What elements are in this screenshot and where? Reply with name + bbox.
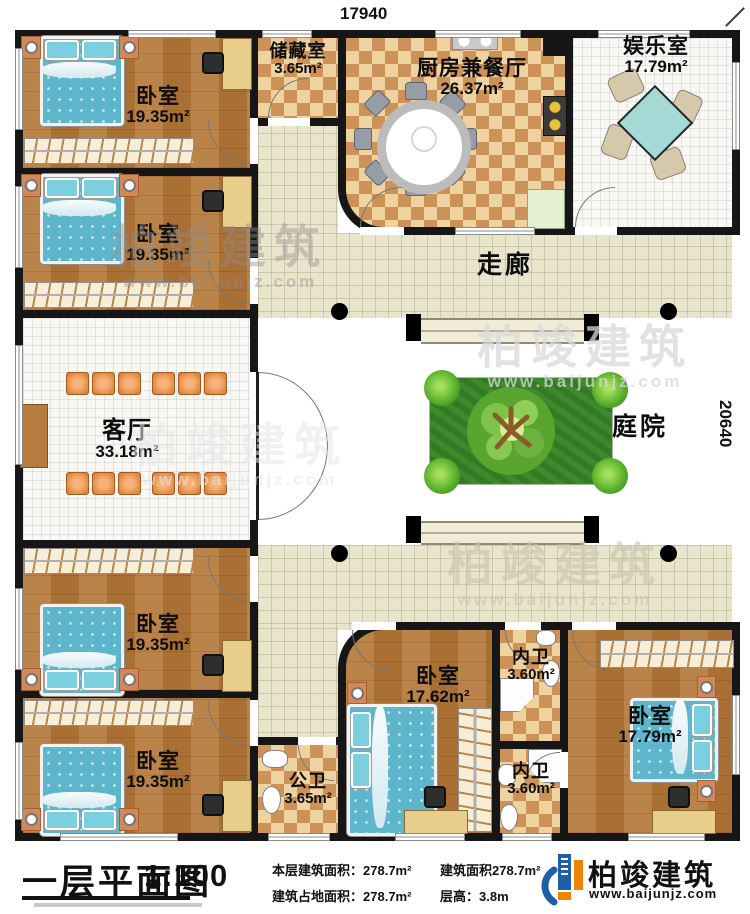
sink [536,630,556,646]
window [128,30,216,38]
stat-label: 本层建筑面积： [272,863,363,878]
fridge [527,189,565,229]
brand-url: www.baijunjz.com [589,886,717,901]
bush-icon [592,372,628,408]
seat-cushion [92,372,115,395]
column [660,545,677,562]
bed-fold [42,62,116,78]
dining-chair [354,128,372,150]
dimension-right: 20640 [715,400,735,490]
window [395,833,465,841]
stat-label: 建筑面积 [440,863,492,878]
window [268,833,330,841]
stat-value: 278.7m² [363,889,411,904]
door-gap [352,622,396,630]
desk-chair [424,786,446,808]
desk [222,38,252,90]
seat-cushion [66,372,89,395]
bush-icon [424,370,460,406]
nightstand [347,682,367,704]
column [331,303,348,320]
window [732,62,740,150]
window [15,588,23,670]
door-gap [505,622,541,630]
sink [498,764,516,786]
seat-cushion [204,372,227,395]
door-gap [250,258,258,304]
bench [421,521,584,545]
window [60,833,178,841]
desk [222,780,252,832]
tree-icon [465,385,557,482]
column [331,545,348,562]
corridor-vertical-floor [258,120,338,241]
door-gap [575,227,617,235]
wardrobe [600,640,734,668]
desk [222,640,252,692]
door-gap [298,737,336,745]
stat-value: 278.7m² [492,863,540,878]
door-gap [560,752,568,788]
window [15,345,23,465]
tv-cabinet [20,404,48,468]
seat-cushion [152,472,175,495]
seat-cushion [118,372,141,395]
bush-icon [424,458,460,494]
nightstand [119,174,139,197]
pillow [45,810,79,830]
pillow [82,40,116,60]
door-leaf [256,446,259,520]
bush-icon [592,458,628,494]
post [406,314,421,341]
stat-floor-height: 层高：3.8m [440,886,509,905]
dining-table [377,100,471,194]
bed-fold [672,700,688,774]
door-gap [250,118,258,164]
seat-cushion [66,472,89,495]
nightstand [21,668,41,691]
pillow [351,752,371,788]
window [15,186,23,268]
stat-building-area: 建筑面积278.7m² [440,860,540,879]
nightstand [119,36,139,59]
stat-footprint-area: 建筑占地面积：278.7m² [272,886,411,905]
seat-cushion [118,472,141,495]
window [732,695,740,775]
wardrobe [24,282,194,308]
bath-entry-floor [258,628,338,745]
wardrobe [24,700,194,726]
stat-label: 建筑占地面积： [272,889,363,904]
door-gap [360,227,404,235]
pillow [45,670,79,690]
nightstand [697,780,716,802]
desk [652,810,716,834]
window [455,227,535,235]
nightstand [697,676,716,698]
plan-scale: 1:100 [144,858,228,894]
wardrobe [24,138,194,164]
door-gap [268,118,310,126]
dimension-top: 17940 [340,4,387,24]
bed-fold [372,706,388,828]
pillow [692,704,712,736]
stat-label: 层高： [440,889,479,904]
brand-logo-icon [540,850,588,913]
wall-corner-block [543,38,565,56]
pillow [351,712,371,748]
door-gap [250,556,258,602]
window [628,833,705,841]
nightstand [119,668,139,691]
bed-fold [42,792,116,808]
post [584,314,599,341]
desk-chair [202,654,224,676]
pillow [82,810,116,830]
title-bar: 一层平面图 1:100 本层建筑面积：278.7m² 建筑占地面积：278.7m… [0,846,750,914]
window [598,30,690,38]
nightstand [119,808,139,831]
pillow [45,40,79,60]
bed-fold [42,652,116,668]
desk-chair [202,190,224,212]
stove [543,96,567,136]
seat-cushion [178,372,201,395]
post [406,516,421,543]
door-gap [572,622,616,630]
window [15,48,23,130]
sink [262,750,288,768]
window [435,30,521,38]
title-underline [22,896,190,900]
door-leaf [256,372,259,446]
seat-cushion [152,372,175,395]
desk-chair [202,52,224,74]
window [262,30,312,38]
bed-fold [42,200,116,216]
desk [404,810,468,834]
dining-chair [405,82,427,100]
door-gap [250,700,258,746]
desk-chair [202,794,224,816]
room-living [15,310,258,548]
window [502,833,552,841]
nightstand [21,36,41,59]
title-underline-shadow [34,903,202,907]
bench [421,318,584,344]
seat-cushion [204,472,227,495]
column [660,303,677,320]
window [15,742,23,820]
pillow [45,178,79,198]
nightstand [21,174,41,197]
wardrobe [24,548,194,574]
seat-cushion [178,472,201,495]
stat-floor-area: 本层建筑面积：278.7m² [272,860,411,879]
nightstand [21,808,41,831]
pillow [692,740,712,772]
desk [222,176,252,228]
corner-tick-topright [725,7,745,27]
stat-value: 3.8m [479,889,509,904]
floor-plan-page: 17940 20640 [0,0,750,914]
pillow [82,670,116,690]
desk-chair [668,786,690,808]
pillow [82,178,116,198]
post [584,516,599,543]
stat-value: 278.7m² [363,863,411,878]
seat-cushion [92,472,115,495]
